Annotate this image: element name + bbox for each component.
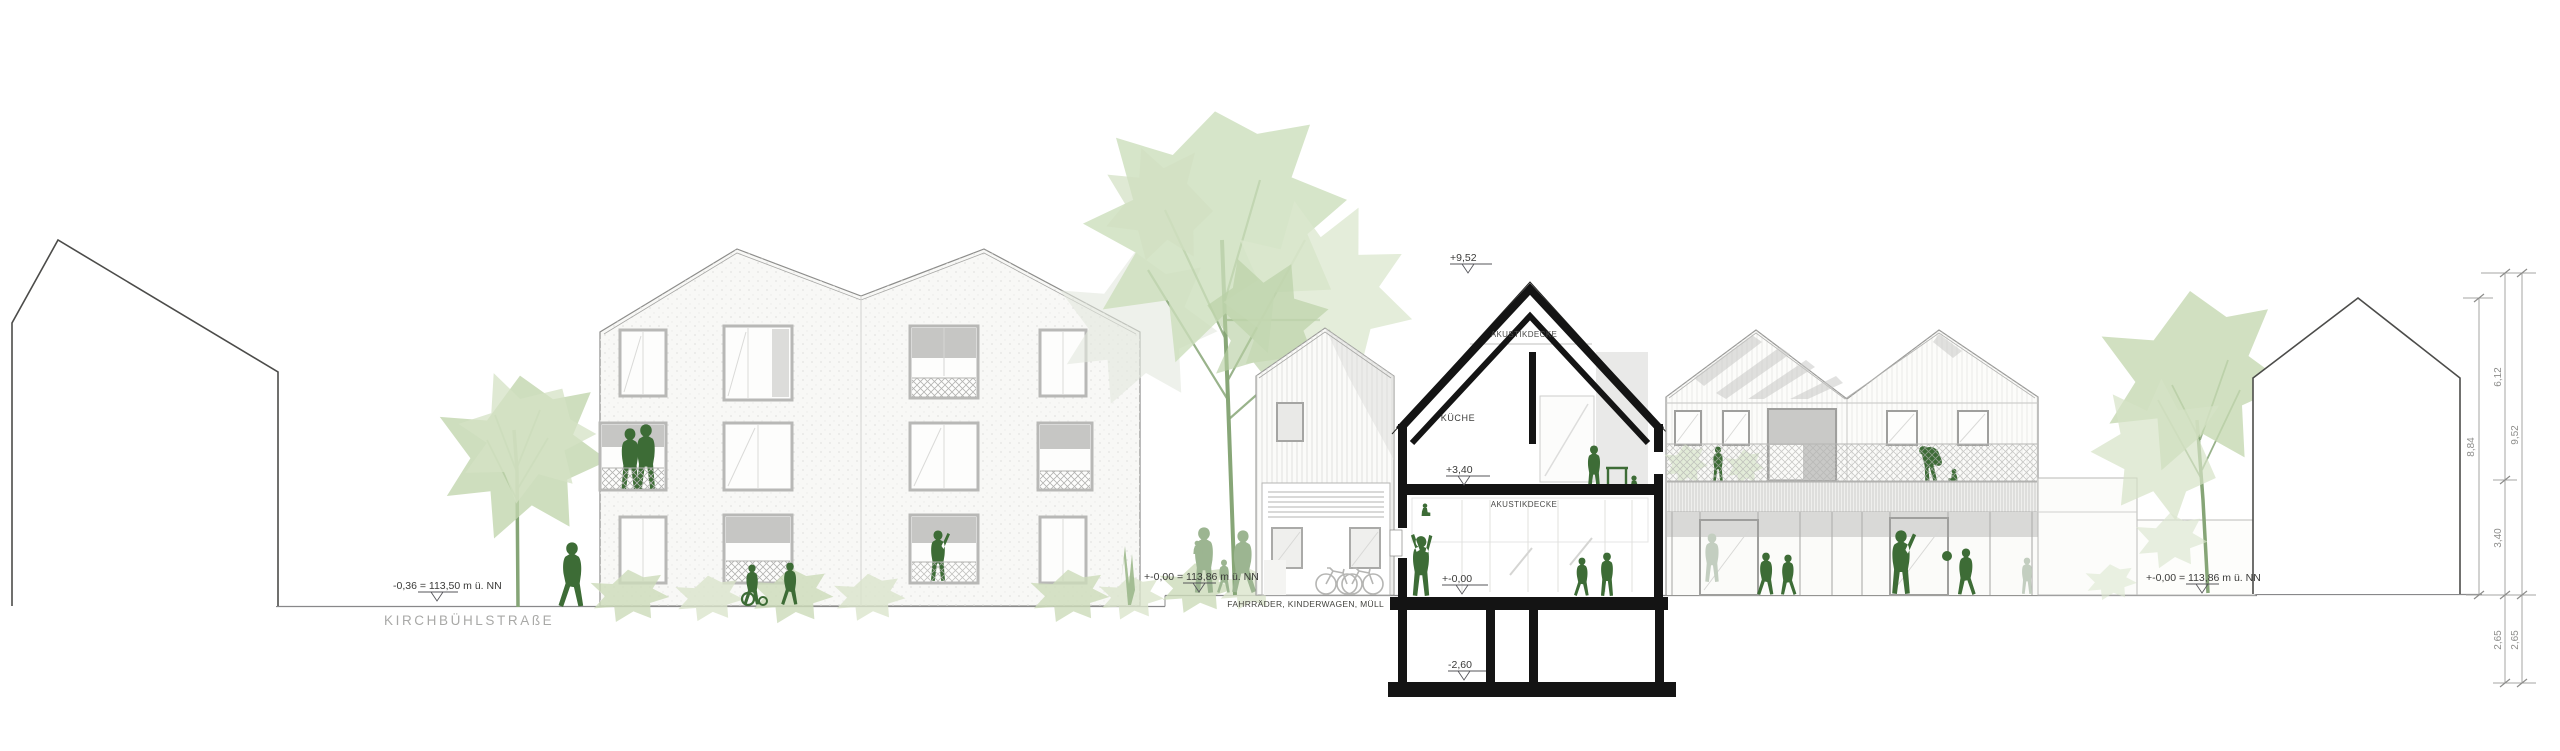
bike-storage-label: FAHRRÄDER, KINDERWAGEN, MÜLL (1227, 599, 1384, 609)
terrace-railing (1667, 444, 2037, 481)
building-section (1388, 282, 1676, 697)
upper-floor-level-label: +3,40 (1446, 464, 1473, 476)
ground-floor-level-label: +-0,00 (1442, 573, 1472, 585)
person-walking-street (559, 542, 584, 607)
basement-level-label: -2,60 (1448, 659, 1472, 671)
dim-roof-zone: 6,12 (2493, 367, 2504, 387)
street-tree (433, 348, 615, 607)
attic-ceiling-label: AKUSTIKDECKE (1491, 330, 1558, 339)
drawing-svg: 8,84 6,12 3,40 2,65 9,52 2,65 -0,36 = 11… (0, 0, 2560, 751)
kitchen-label: KÜCHE (1441, 413, 1476, 423)
elevation-drawing: 8,84 6,12 3,40 2,65 9,52 2,65 -0,36 = 11… (0, 0, 2560, 751)
dimension-ticks (2474, 269, 2527, 687)
shed-louvers (1268, 491, 1384, 521)
dimension-lines (2463, 269, 2536, 687)
ground-ceiling-label: AKUSTIKDECKE (1491, 500, 1558, 509)
window (1040, 330, 1086, 396)
ground-level-left-label: +-0,00 = 113,86 m ü. NN (1144, 571, 1259, 583)
dim-total-height: 9,52 (2510, 425, 2521, 445)
dim-ridge-house: 8,84 (2466, 437, 2477, 457)
left-house-outline (12, 240, 278, 606)
loggia-window (1038, 423, 1092, 490)
loggia-window-person (910, 515, 978, 583)
loggia-window (724, 515, 792, 583)
shed-gable-window (1277, 403, 1303, 441)
loggia-balcony-couple (600, 423, 666, 490)
dim-ground-zone: 3,40 (2493, 528, 2504, 548)
ground-level-right-label: +-0,00 = 113,86 m ü. NN (2146, 572, 2261, 584)
soffit-shadow (1667, 512, 2038, 537)
window (620, 330, 666, 396)
bike-shed (1256, 328, 1394, 595)
window (910, 423, 978, 490)
dim-basement-outer: 2,65 (2510, 630, 2521, 650)
ridge-level-label: +9,52 (1450, 252, 1477, 264)
street-name-label: KIRCHBÜHLSTRAßE (384, 613, 554, 628)
window (1040, 517, 1086, 583)
street-level-label: -0,36 = 113,50 m ü. NN (393, 580, 502, 592)
right-house-outline (2253, 298, 2460, 594)
loggia-window (910, 326, 978, 398)
window (724, 326, 792, 400)
dim-basement-inner: 2,65 (2493, 630, 2504, 650)
window (724, 423, 792, 490)
